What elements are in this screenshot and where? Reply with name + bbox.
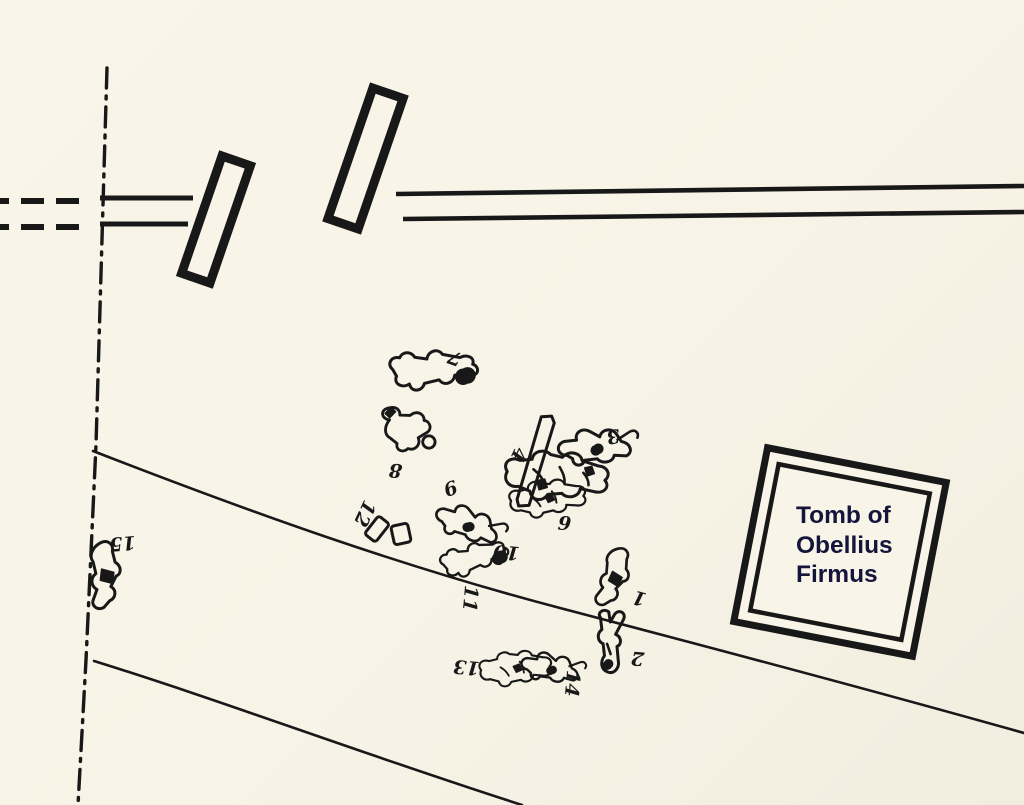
victim-number-10: 10: [492, 540, 520, 564]
city-wall-bottom: [403, 212, 1024, 219]
city-wall-top: [396, 186, 1024, 194]
gate-pillar-west: [182, 156, 251, 283]
victim-number-1: 1: [630, 585, 648, 610]
road-edge-line-lower: [94, 661, 522, 805]
victim-number-11: 11: [458, 584, 482, 612]
wall-stub: [100, 198, 193, 224]
excavation-plan: 12346789101112131415 Tomb of Obellius Fi…: [0, 0, 1024, 805]
boundary-dashdot-line: [78, 68, 107, 805]
victim-body-1: [594, 545, 634, 610]
gate-pillar-east: [328, 88, 403, 229]
victim-number-13: 13: [452, 655, 480, 679]
victim-body-2: [596, 610, 624, 673]
victim-number-3: 3: [605, 424, 622, 448]
victim-number-12: 12: [349, 497, 380, 530]
victim-body-13: [479, 649, 553, 688]
site-plan-svg: 12346789101112131415: [0, 0, 1024, 805]
victim-body-8: [378, 397, 437, 461]
victim-number-labels: 12346789101112131415: [108, 345, 648, 698]
dashed-wall-left: [0, 201, 90, 227]
tomb-label: Tomb of Obellius Firmus: [796, 501, 926, 590]
victim-body-7: [389, 346, 479, 393]
victim-number-14: 14: [560, 669, 584, 697]
small-box-object-b: [391, 523, 412, 545]
victim-number-8: 8: [388, 458, 404, 481]
victim-number-9: 9: [557, 512, 572, 535]
victim-number-15: 15: [108, 531, 136, 555]
victim-number-6: 6: [441, 477, 461, 502]
victim-number-2: 2: [630, 646, 646, 669]
city-wall: [396, 186, 1024, 219]
victim-number-4: 4: [506, 444, 532, 465]
victim-body-9: [508, 477, 587, 520]
victim-number-7: 7: [445, 345, 465, 370]
